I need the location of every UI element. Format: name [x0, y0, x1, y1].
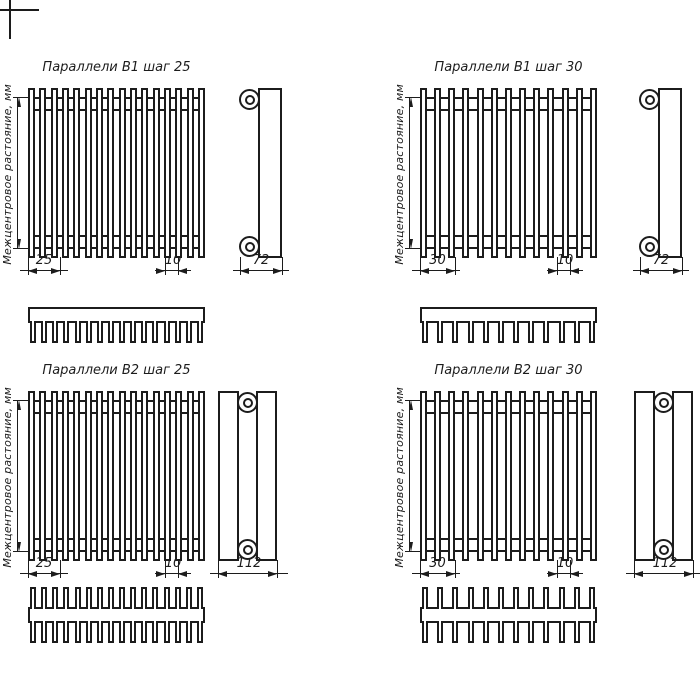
pitch-dimension: 25 [20, 256, 68, 276]
top-view-tooth [86, 321, 92, 343]
top-view-tooth [63, 621, 69, 643]
top-view-tooth [175, 587, 181, 609]
radiator-front-view [420, 391, 597, 561]
center-distance-dimension [404, 97, 410, 249]
top-view-tooth [574, 321, 580, 343]
top-view-tooth [452, 587, 458, 609]
pipe-connection-bottom-icon [639, 236, 660, 257]
radiator-tube [73, 88, 80, 258]
end-gap-dimension: 10 [547, 559, 583, 579]
top-view-tooth [452, 321, 458, 343]
top-view-tooth [483, 321, 489, 343]
port-inner-circle [245, 242, 255, 252]
panel-b2-step-30: Параллели В2 шаг 30 Межцентровое растоян… [392, 303, 700, 653]
panel-title: Параллели В1 шаг 30 [420, 60, 597, 75]
radiator-tube [175, 391, 182, 561]
top-view-tooth [152, 321, 158, 343]
depth-value: 72 [233, 253, 289, 268]
dimension-line [17, 97, 18, 249]
radiator-tube [448, 391, 455, 561]
top-view-tooth [498, 587, 504, 609]
radiator-tube [576, 391, 583, 561]
top-view-tooth [119, 321, 125, 343]
top-view-tooth [468, 321, 474, 343]
radiator-tube [164, 88, 171, 258]
top-view-tooth [164, 321, 170, 343]
top-view-tooth [130, 587, 136, 609]
port-inner-circle [659, 398, 669, 408]
arrow-left-icon [178, 571, 187, 577]
arrow-up-icon [409, 97, 413, 107]
arrow-left-icon [640, 268, 649, 274]
arrow-left-icon [570, 571, 579, 577]
arrow-left-icon [218, 571, 227, 577]
radiator-tube [28, 88, 35, 258]
arrow-right-icon [156, 571, 165, 577]
dimension-line [409, 400, 410, 552]
top-view-tooth [589, 621, 595, 643]
top-view-tooth [186, 321, 192, 343]
center-distance-dimension [404, 400, 410, 552]
radiator-tube [448, 88, 455, 258]
center-distance-dimension [12, 97, 18, 249]
radiator-tube [420, 88, 427, 258]
arrow-right-icon [268, 571, 277, 577]
radiator-tube [141, 88, 148, 258]
side-body-front-row [634, 391, 655, 561]
top-view-tooth [97, 621, 103, 643]
radiator-top-view [420, 587, 597, 651]
pipe-connection-bottom-icon [653, 539, 674, 560]
top-view-tooth [63, 587, 69, 609]
radiator-side-view: 112 [218, 391, 280, 591]
top-view-tooth [119, 621, 125, 643]
top-view-tooth [574, 587, 580, 609]
radiator-tube [175, 88, 182, 258]
radiator-tube [491, 88, 498, 258]
radiator-tube [590, 391, 597, 561]
radiator-front-view [28, 391, 205, 561]
top-view-tooth [30, 321, 36, 343]
top-view-tooth [75, 621, 81, 643]
top-view-tooth [468, 621, 474, 643]
arrow-right-icon [273, 268, 282, 274]
top-view-tooth [141, 321, 147, 343]
extension-line [405, 400, 421, 401]
top-view-tooth [528, 621, 534, 643]
tube-array [420, 391, 597, 561]
radiator-tube [85, 391, 92, 561]
top-view-tooth [164, 621, 170, 643]
arrow-left-icon [28, 571, 37, 577]
tube-array [420, 88, 597, 258]
radiator-tube [505, 391, 512, 561]
top-view-tooth [574, 621, 580, 643]
top-view-tooth [543, 587, 549, 609]
top-view-tooth [97, 587, 103, 609]
top-view-tooth [483, 621, 489, 643]
top-view-tooth [108, 587, 114, 609]
top-view-tooth [543, 621, 549, 643]
arrow-left-icon [570, 268, 579, 274]
top-view-tooth [197, 587, 203, 609]
radiator-tube [96, 391, 103, 561]
side-body-front-row [218, 391, 239, 561]
top-view-tooth [589, 587, 595, 609]
top-view-tooth [41, 621, 47, 643]
side-body [258, 88, 282, 258]
arrow-right-icon [446, 268, 455, 274]
technical-drawing-canvas: Параллели В1 шаг 25 Межцентровое растоян… [0, 0, 700, 700]
radiator-tube [187, 88, 194, 258]
radiator-tube [590, 88, 597, 258]
extension-line [13, 97, 29, 98]
top-view-tooth [468, 587, 474, 609]
radiator-front-view [28, 88, 205, 258]
top-view-tooth [75, 587, 81, 609]
tube-array [28, 391, 205, 561]
radiator-front-view [420, 88, 597, 258]
radiator-tube [119, 88, 126, 258]
pipe-connection-top-icon [239, 89, 260, 110]
radiator-tube [96, 88, 103, 258]
top-view-tooth [197, 621, 203, 643]
radiator-tube [62, 391, 69, 561]
arrow-left-icon [28, 268, 37, 274]
top-view-tooth [52, 587, 58, 609]
side-body-back-row [672, 391, 693, 561]
arrow-right-icon [51, 268, 60, 274]
top-view-tooth [513, 321, 519, 343]
top-view-tooth [175, 321, 181, 343]
tooth-row-upper [30, 587, 203, 609]
pitch-dimension: 25 [20, 559, 68, 579]
top-view-tooth [141, 621, 147, 643]
radiator-tube [51, 391, 58, 561]
top-view-tooth [108, 321, 114, 343]
top-view-tooth [30, 587, 36, 609]
extension-line [405, 248, 421, 249]
radiator-tube [141, 391, 148, 561]
top-view-tooth [152, 621, 158, 643]
arrow-up-icon [17, 97, 21, 107]
radiator-tube [519, 391, 526, 561]
top-view-tooth [186, 621, 192, 643]
radiator-tube [462, 391, 469, 561]
top-view-tooth [528, 587, 534, 609]
arrow-right-icon [684, 571, 693, 577]
radiator-tube [51, 88, 58, 258]
arrow-up-icon [409, 400, 413, 410]
tooth-row [30, 321, 203, 343]
radiator-tube [85, 88, 92, 258]
arrow-left-icon [420, 571, 429, 577]
radiator-tube [198, 88, 205, 258]
port-inner-circle [245, 95, 255, 105]
end-gap-dimension: 10 [155, 256, 191, 276]
top-view-tooth [52, 321, 58, 343]
arrow-right-icon [156, 268, 165, 274]
top-view-tooth [152, 587, 158, 609]
tooth-row-upper [422, 587, 595, 609]
top-view-tooth [41, 321, 47, 343]
side-body [658, 88, 682, 258]
top-view-tooth [422, 321, 428, 343]
top-view-tooth [528, 321, 534, 343]
radiator-tube [39, 88, 46, 258]
top-view-tooth [41, 587, 47, 609]
port-inner-circle [659, 545, 669, 555]
radiator-tube [107, 391, 114, 561]
radiator-tube [62, 88, 69, 258]
top-view-tooth [513, 587, 519, 609]
radiator-top-view [28, 587, 205, 651]
extension-line [405, 97, 421, 98]
radiator-tube [533, 391, 540, 561]
panel-b2-step-25: Параллели В2 шаг 25 Межцентровое растоян… [0, 303, 345, 653]
radiator-tube [562, 88, 569, 258]
top-view-tooth [437, 621, 443, 643]
end-gap-dimension: 10 [155, 559, 191, 579]
tooth-row-lower [30, 621, 203, 643]
radiator-tube [130, 88, 137, 258]
panel-title: Параллели В2 шаг 25 [28, 363, 205, 378]
panel-b1-step-30: Параллели В1 шаг 30 Межцентровое растоян… [392, 0, 700, 350]
top-view-tooth [437, 587, 443, 609]
side-body-back-row [256, 391, 277, 561]
port-inner-circle [243, 545, 253, 555]
radiator-tube [519, 88, 526, 258]
top-view-tooth [483, 587, 489, 609]
radiator-tube [73, 391, 80, 561]
pipe-connection-bottom-icon [237, 539, 258, 560]
top-view-tooth [130, 321, 136, 343]
top-view-tooth [559, 621, 565, 643]
top-view-tooth [141, 587, 147, 609]
radiator-tube [153, 391, 160, 561]
radiator-tube [153, 88, 160, 258]
radiator-tube [434, 88, 441, 258]
radiator-tube [130, 391, 137, 561]
dimension-line [409, 97, 410, 249]
top-view-tooth [86, 621, 92, 643]
radiator-tube [39, 391, 46, 561]
pitch-dimension: 30 [412, 559, 460, 579]
top-view-tooth [452, 621, 458, 643]
radiator-tube [164, 391, 171, 561]
radiator-tube [547, 391, 554, 561]
top-view-tooth [130, 621, 136, 643]
top-view-tooth [186, 587, 192, 609]
pipe-connection-top-icon [237, 392, 258, 413]
radiator-tube [576, 88, 583, 258]
radiator-tube [533, 88, 540, 258]
radiator-tube [119, 391, 126, 561]
top-view-tooth [63, 321, 69, 343]
center-distance-dimension [12, 400, 18, 552]
panel-title: Параллели В1 шаг 25 [28, 60, 205, 75]
top-view-tooth [559, 321, 565, 343]
arrow-left-icon [240, 268, 249, 274]
radiator-tube [562, 391, 569, 561]
top-view-tooth [119, 587, 125, 609]
depth-dimension: 72 [633, 256, 689, 276]
top-view-tooth [108, 621, 114, 643]
radiator-tube [477, 391, 484, 561]
top-view-tooth [559, 587, 565, 609]
pitch-dimension: 30 [412, 256, 460, 276]
arrow-right-icon [548, 268, 557, 274]
radiator-tube [28, 391, 35, 561]
arrow-left-icon [634, 571, 643, 577]
top-view-tooth [422, 621, 428, 643]
radiator-tube [547, 88, 554, 258]
extension-line [13, 248, 29, 249]
top-view-tooth [30, 621, 36, 643]
top-view-tooth [197, 321, 203, 343]
port-inner-circle [645, 242, 655, 252]
arrow-right-icon [446, 571, 455, 577]
tooth-row [422, 321, 595, 343]
radiator-tube [491, 391, 498, 561]
radiator-tube [187, 391, 194, 561]
pipe-connection-top-icon [639, 89, 660, 110]
radiator-tube [477, 88, 484, 258]
dimension-line [17, 400, 18, 552]
extension-line [13, 551, 29, 552]
top-view-tooth [422, 587, 428, 609]
port-inner-circle [645, 95, 655, 105]
extension-line [405, 551, 421, 552]
radiator-tube [462, 88, 469, 258]
pipe-connection-bottom-icon [239, 236, 260, 257]
top-view-tooth [498, 321, 504, 343]
pipe-connection-top-icon [653, 392, 674, 413]
radiator-side-view: 72 [239, 88, 291, 288]
end-gap-dimension: 10 [547, 256, 583, 276]
top-view-tooth [543, 321, 549, 343]
radiator-side-view: 112 [634, 391, 696, 591]
radiator-tube [198, 391, 205, 561]
arrow-right-icon [548, 571, 557, 577]
top-view-tooth [52, 621, 58, 643]
extension-line [13, 400, 29, 401]
port-inner-circle [243, 398, 253, 408]
radiator-tube [434, 391, 441, 561]
depth-value: 72 [633, 253, 689, 268]
arrow-right-icon [51, 571, 60, 577]
radiator-side-view: 72 [639, 88, 691, 288]
top-view-tooth [437, 321, 443, 343]
depth-dimension: 112 [210, 559, 288, 579]
top-view-tooth [498, 621, 504, 643]
radiator-tube [505, 88, 512, 258]
top-view-tooth [175, 621, 181, 643]
tooth-row-lower [422, 621, 595, 643]
arrow-left-icon [178, 268, 187, 274]
radiator-tube [107, 88, 114, 258]
panel-b1-step-25: Параллели В1 шаг 25 Межцентровое растоян… [0, 0, 345, 350]
top-view-tooth [75, 321, 81, 343]
top-view-tooth [589, 321, 595, 343]
top-view-tooth [97, 321, 103, 343]
depth-dimension: 72 [233, 256, 289, 276]
top-view-tooth [164, 587, 170, 609]
tube-array [28, 88, 205, 258]
top-view-tooth [513, 621, 519, 643]
panel-title: Параллели В2 шаг 30 [420, 363, 597, 378]
arrow-left-icon [420, 268, 429, 274]
radiator-tube [420, 391, 427, 561]
arrow-right-icon [673, 268, 682, 274]
top-view-tooth [86, 587, 92, 609]
arrow-up-icon [17, 400, 21, 410]
depth-dimension: 112 [626, 559, 700, 579]
